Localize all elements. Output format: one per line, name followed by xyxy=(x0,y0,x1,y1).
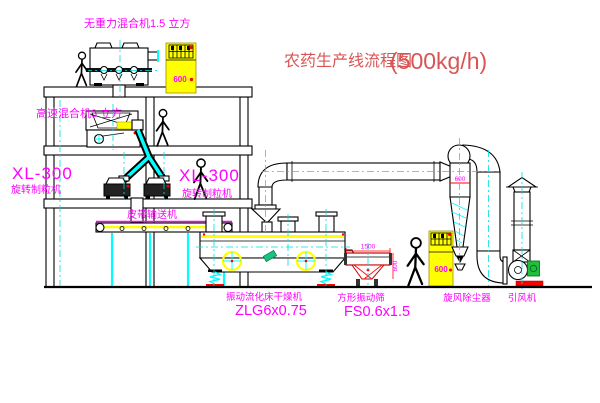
cad-drawing-page: 600 xyxy=(0,0,600,403)
label-granulator-right-name: 旋转制粒机 xyxy=(182,187,232,200)
stub-flange xyxy=(316,212,337,216)
conveyor-pulley xyxy=(224,224,232,232)
indicator-light-icon xyxy=(449,269,452,272)
funnel-stub xyxy=(262,222,272,232)
mixer-foot xyxy=(94,83,102,86)
label-granulator-left-name: 旋转制粒机 xyxy=(11,183,61,196)
granulator-body xyxy=(144,184,170,196)
riser-funnel xyxy=(252,209,280,223)
screen-foot xyxy=(374,279,378,286)
cabinet-slot xyxy=(441,234,444,238)
dryer-stub xyxy=(319,216,334,232)
indicator-light-icon xyxy=(127,185,130,188)
duct-elbow-bottom xyxy=(477,251,505,283)
indicator-light-icon xyxy=(167,185,170,188)
indicator-light-icon xyxy=(189,46,192,49)
cabinet-panel-text: 600 xyxy=(434,265,448,274)
fan-motor xyxy=(528,261,540,276)
cabinet-slot xyxy=(171,46,174,50)
screen-endcap xyxy=(344,253,347,265)
control-cabinet-2: 600 xyxy=(429,231,453,286)
label-screen-name: 方形振动筛 xyxy=(337,292,385,304)
floor-slab-top xyxy=(44,87,252,97)
drawing-title-capacity: (500kg/h) xyxy=(390,48,487,74)
mixer-hopper xyxy=(95,43,112,48)
indicator-dot xyxy=(342,233,344,235)
drawing-canvas: 600 xyxy=(0,0,600,403)
granulator-body xyxy=(104,184,130,196)
paddle-shaft xyxy=(116,67,123,74)
cabinet-slot xyxy=(179,46,182,50)
fan-base xyxy=(516,281,543,286)
flange-dot xyxy=(305,260,308,263)
fan-inlet-flange xyxy=(503,257,507,284)
collection-bin xyxy=(455,264,465,270)
dust-cup xyxy=(452,247,468,256)
mixer-hopper xyxy=(122,43,139,48)
dryer-deck-band xyxy=(201,235,344,238)
fan-housing xyxy=(509,261,528,280)
paddle-shaft xyxy=(131,67,138,74)
label-induced-fan: 引风机 xyxy=(508,292,537,304)
screen-height-dim: 600 xyxy=(392,260,399,271)
flange-dot xyxy=(231,260,234,263)
duct-elbow-left xyxy=(258,163,287,187)
induced-fan xyxy=(503,257,543,286)
cabinet-panel-text: 600 xyxy=(173,75,187,84)
granulator-foot xyxy=(164,196,168,200)
cabinet-slot xyxy=(433,234,436,238)
granulator-foot xyxy=(124,196,128,200)
screen-foot xyxy=(356,279,360,286)
control-cabinet-1: 600 xyxy=(166,43,196,93)
cyclone-dim-text: 600 xyxy=(455,176,466,183)
mixer-bottom-stub xyxy=(113,85,125,97)
person-figure xyxy=(76,52,88,86)
person-figure xyxy=(408,238,424,285)
paddle-shaft xyxy=(101,67,108,74)
indicator-light-icon xyxy=(190,78,193,81)
discharge-collar xyxy=(132,120,143,130)
discharge-pipe-right xyxy=(148,52,158,60)
label-high-speed-mixer: 高速混合机3 立方 xyxy=(36,106,122,120)
label-dryer-model: ZLG6x0.75 xyxy=(235,303,307,319)
granulator-foot xyxy=(106,196,110,200)
label-screen-model: FS0.6x1.5 xyxy=(344,304,410,320)
granulator-hopper xyxy=(146,178,166,184)
label-gravity-mixer: 无重力混合机1.5 立方 xyxy=(84,16,190,30)
person-figure xyxy=(157,109,169,146)
indicator-light-icon xyxy=(448,233,451,236)
granulator-hopper xyxy=(106,178,126,184)
indicator-dot xyxy=(203,233,205,235)
label-granulator-left-model: XL-300 xyxy=(12,164,73,183)
mixer-foot xyxy=(136,83,144,86)
label-granulator-right-model: XL-300 xyxy=(179,166,240,185)
granulator-foot xyxy=(146,196,150,200)
floor-slab-low xyxy=(44,199,252,208)
dust-cup-tip xyxy=(456,256,464,263)
conveyor-pulley xyxy=(96,224,104,232)
label-belt-conveyor: 皮带输送机 xyxy=(127,208,177,221)
label-cyclone: 旋风除尘器 xyxy=(443,292,491,304)
label-dryer-name: 振动流化床干燥机 xyxy=(226,291,303,303)
